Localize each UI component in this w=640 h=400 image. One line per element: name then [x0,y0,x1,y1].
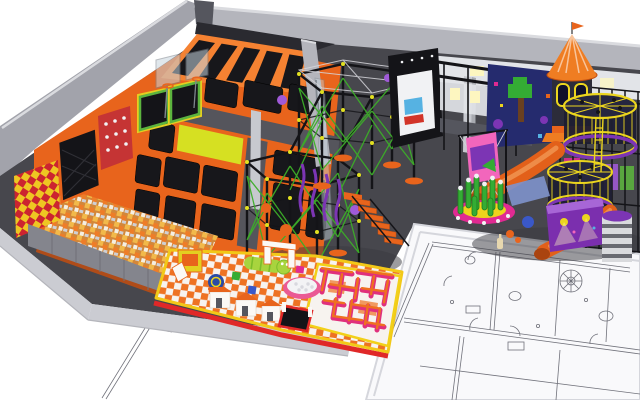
interactive-game-wall [388,48,443,148]
spiral-stair-symbol [560,270,582,292]
ball-pit [283,277,321,299]
play-ball [522,216,534,228]
park-render [0,0,640,400]
striped-tower [602,211,632,263]
disco-room [546,198,606,252]
render-canvas [0,0,640,400]
